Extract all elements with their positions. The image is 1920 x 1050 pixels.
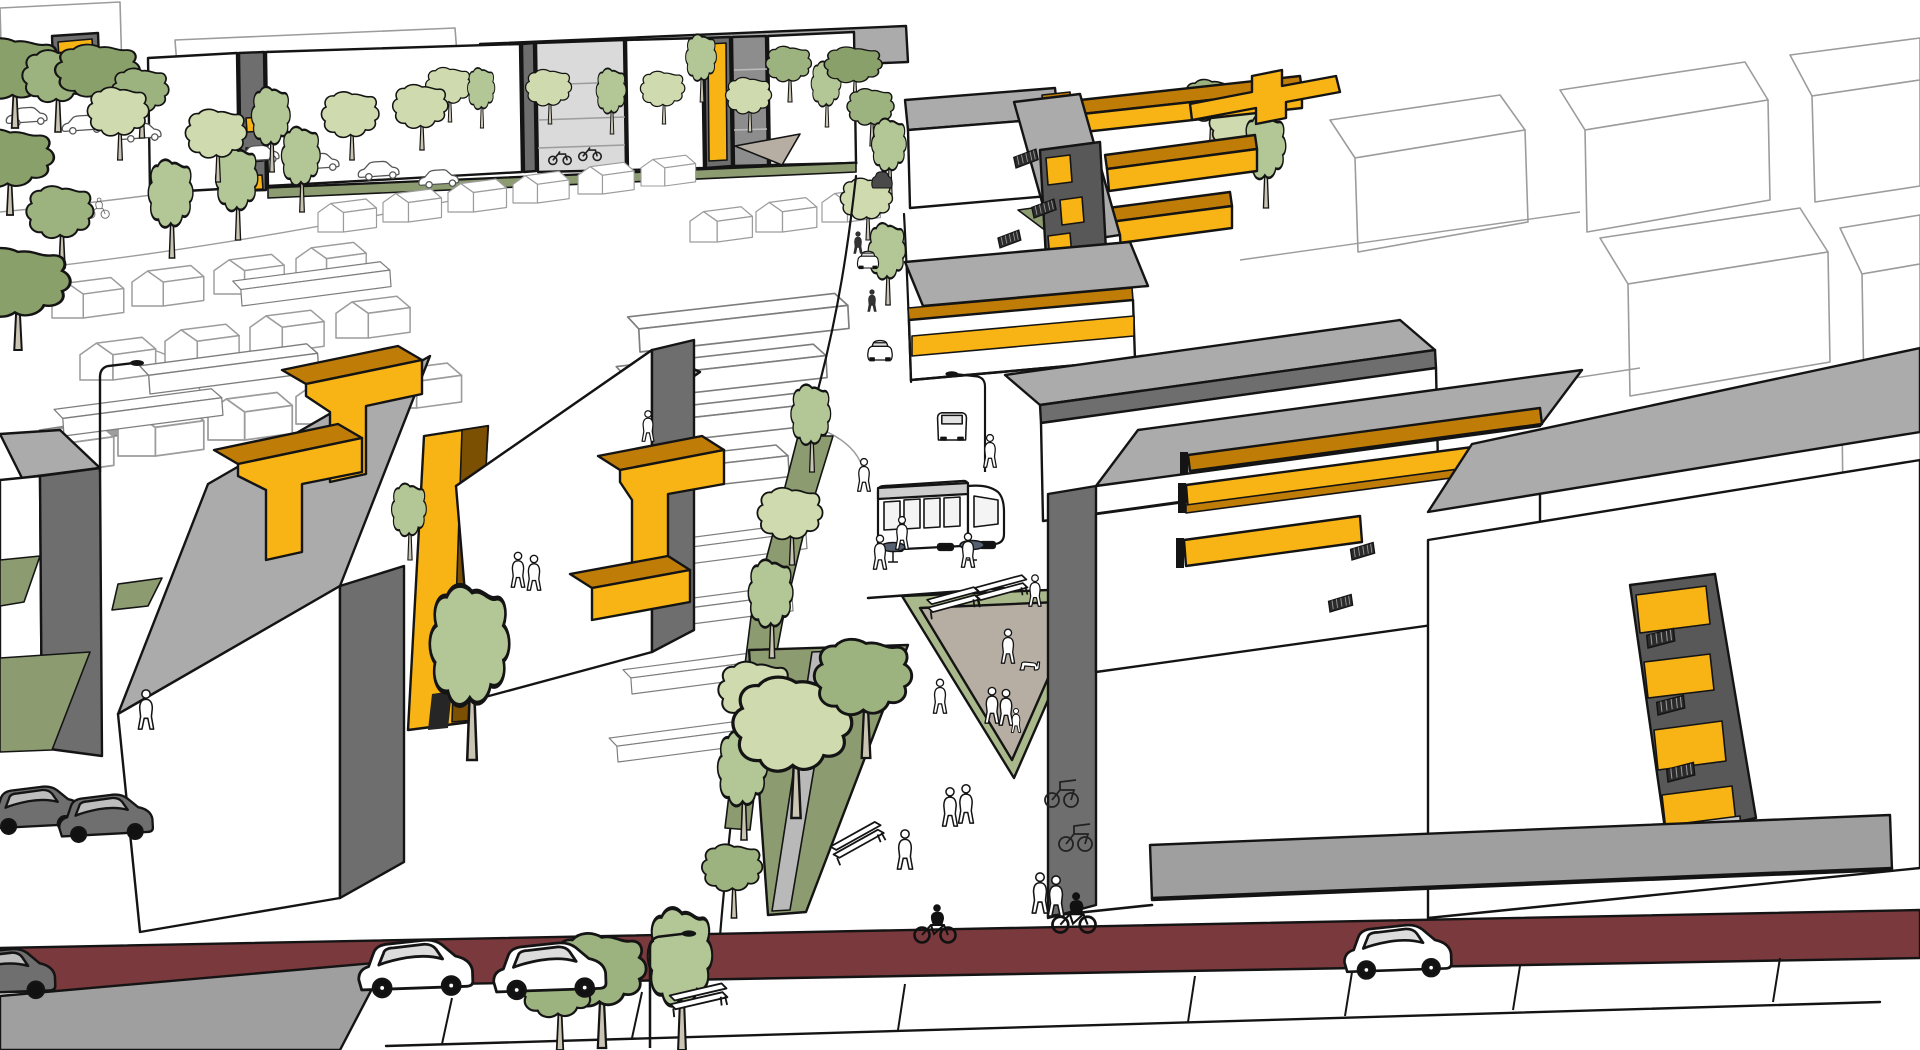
street-car-icon [868,341,892,361]
person-dark-icon [854,232,863,254]
person-icon [1032,873,1048,913]
street-edge [386,1002,1880,1046]
person-icon [933,679,946,713]
person-dark-icon [868,290,877,312]
foreground-street [0,910,1920,1050]
tree-columnar-icon [281,127,320,212]
tree-columnar-icon [148,160,193,258]
tree-wide-dark-icon [0,248,70,350]
context-house-icon [80,337,156,380]
stairs-icon [997,230,1021,248]
tree-columnar-icon [216,147,258,240]
end-wall [340,566,404,898]
context-house-icon [318,199,377,232]
context-house-icon [132,266,204,306]
context-house-icon [756,198,817,232]
dark-joint [522,43,536,172]
context-house-icon [250,310,324,352]
context-house-icon [383,189,442,222]
person-icon [897,830,912,869]
lawn [112,578,162,610]
end-wall [1048,486,1096,918]
orange-landing [1046,155,1072,185]
person-icon [943,788,958,826]
tree-columnar-icon [430,585,509,760]
context-house-icon [336,296,410,338]
context-house-icon [690,207,752,242]
tree-round-mid-icon [702,844,762,918]
person-icon [858,459,871,492]
tree-columnar-icon [648,908,713,1050]
garage-box-icon [627,293,850,353]
urban-design-rendering [0,0,1920,1050]
person-icon [959,785,974,823]
van-icon [938,413,967,440]
rendering-canvas [0,0,1920,1050]
tree-round-light-icon [87,87,148,160]
orange-landing [1060,197,1084,225]
orange-walkway-bridges [1080,70,1340,244]
